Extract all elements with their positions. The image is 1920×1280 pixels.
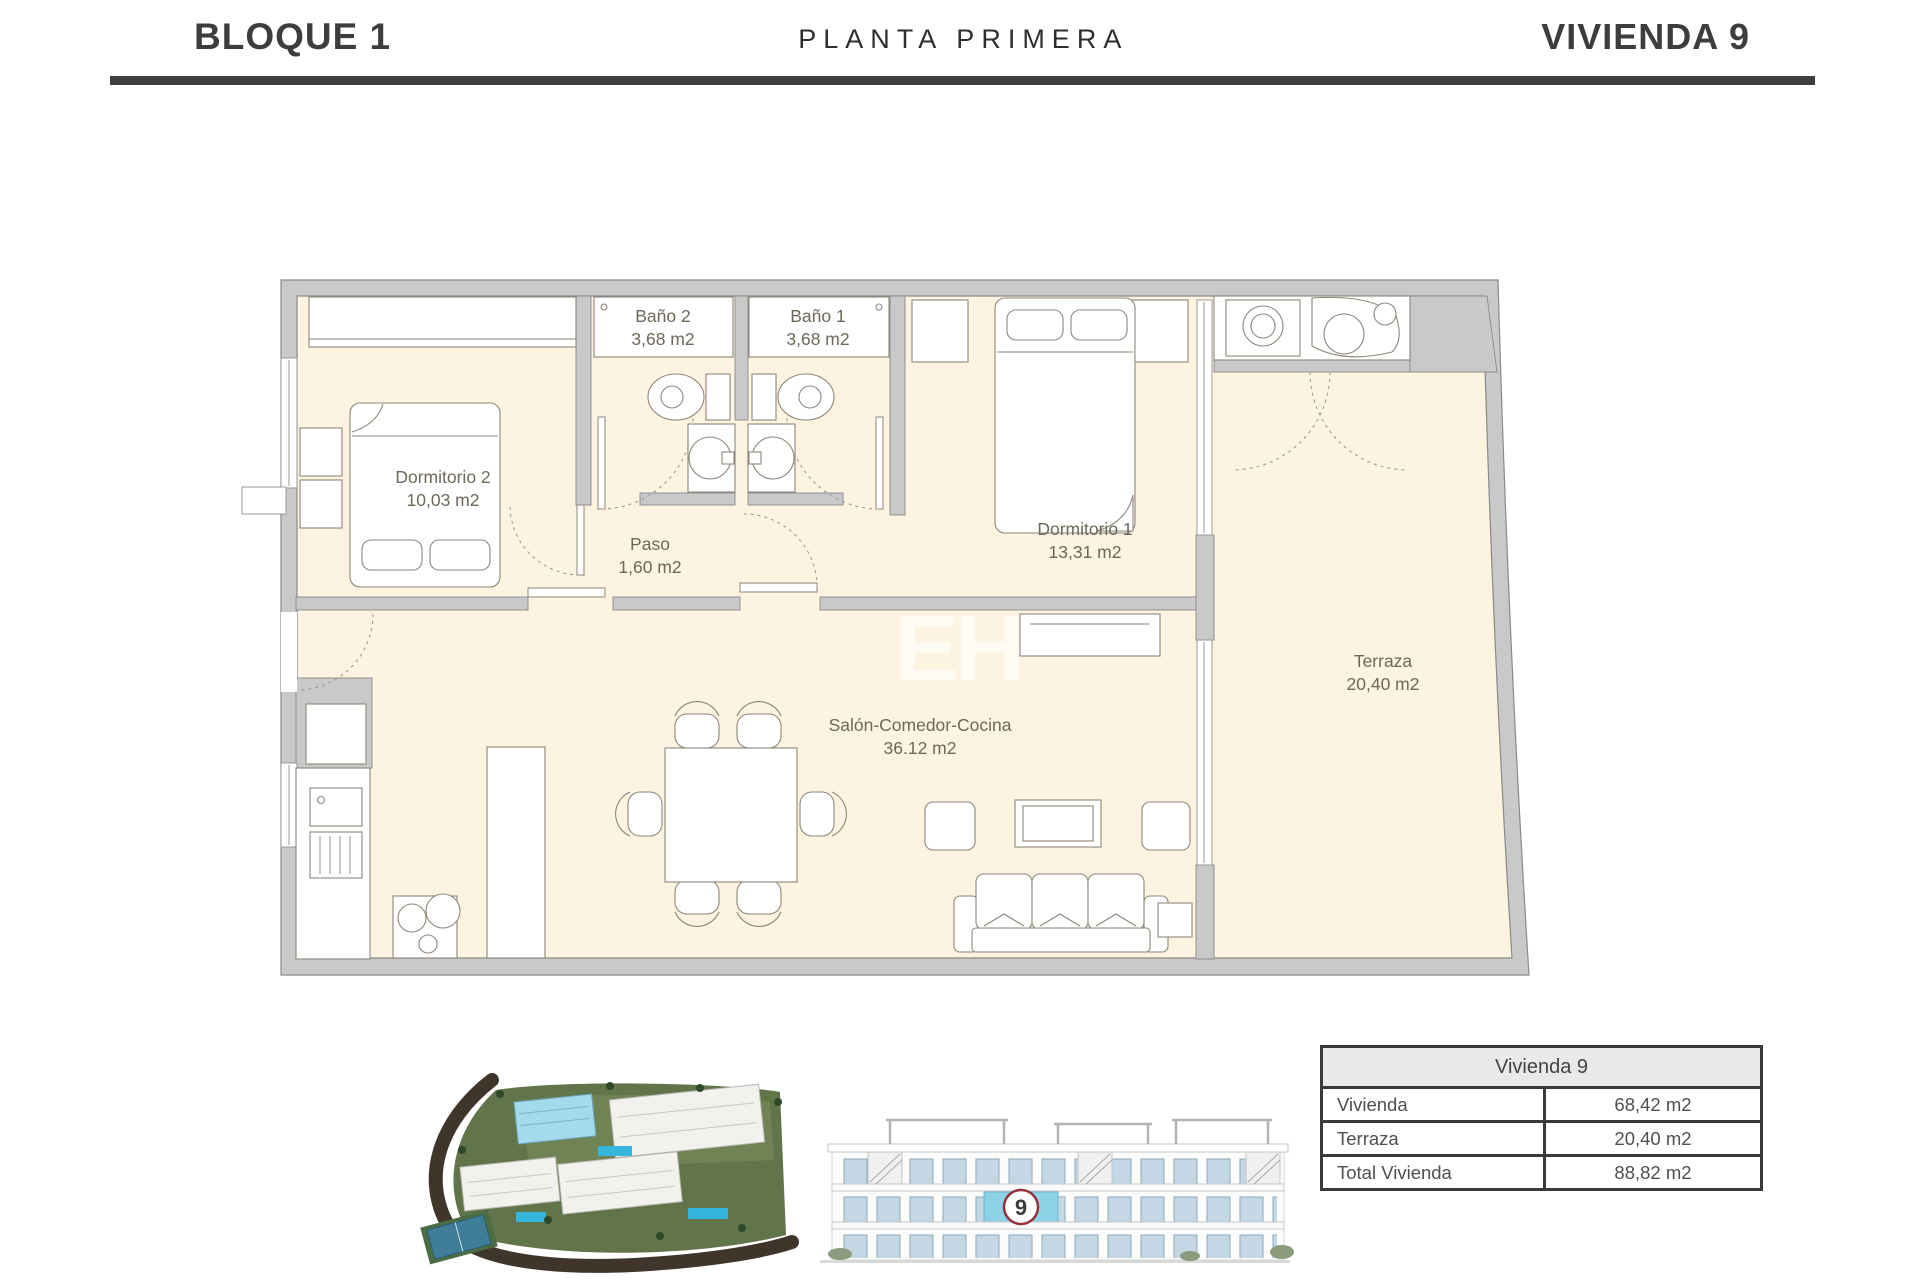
room-label-dormitorio1: Dormitorio 113,31 m2	[1037, 518, 1132, 564]
room-label-salon: Salón-Comedor-Cocina36.12 m2	[829, 714, 1012, 760]
row-label: Terraza	[1323, 1128, 1543, 1150]
row-value: 88,82 m2	[1543, 1157, 1760, 1188]
aerial-render-image	[420, 1080, 792, 1266]
table-row: Vivienda 68,42 m2	[1323, 1089, 1760, 1120]
table-row: Terraza 20,40 m2	[1323, 1120, 1760, 1154]
room-label-paso: Paso1,60 m2	[618, 533, 681, 579]
row-label: Vivienda	[1323, 1094, 1543, 1116]
table-row: Total Vivienda 88,82 m2	[1323, 1154, 1760, 1188]
room-label-bano2: Baño 23,68 m2	[631, 305, 694, 351]
room-label-terraza: Terraza20,40 m2	[1347, 650, 1420, 696]
row-label: Total Vivienda	[1323, 1162, 1543, 1184]
summary-table-header: Vivienda 9	[1323, 1048, 1760, 1089]
summary-table: Vivienda 9 Vivienda 68,42 m2 Terraza 20,…	[1320, 1045, 1763, 1191]
room-label-dormitorio2: Dormitorio 210,03 m2	[395, 466, 490, 512]
room-label-bano1: Baño 13,68 m2	[786, 305, 849, 351]
row-value: 20,40 m2	[1543, 1123, 1760, 1154]
row-value: 68,42 m2	[1543, 1089, 1760, 1120]
page: BLOQUE 1 PLANTA PRIMERA VIVIENDA 9	[0, 0, 1920, 1280]
watermark-logo: EH	[894, 594, 1020, 702]
unit-badge-number: 9	[1015, 1195, 1027, 1220]
elevation-render-image: 9	[820, 1120, 1294, 1263]
